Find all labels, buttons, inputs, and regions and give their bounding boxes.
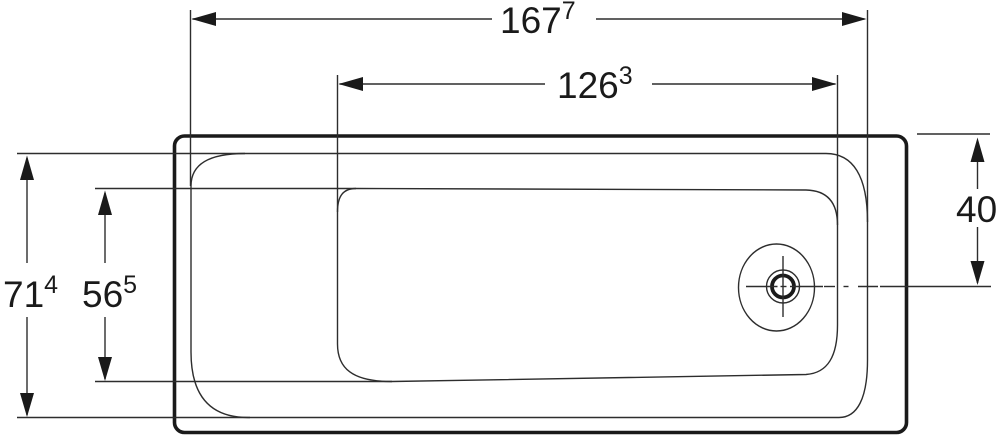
- dim-label-length-inner: 1263: [557, 62, 633, 106]
- dim-drain-offset-arrow-down: [971, 261, 985, 285]
- dim-width-inner-arrow-down: [98, 357, 112, 381]
- bathtub-dimension-drawing: 1677 1263 714 565 40: [0, 0, 1000, 439]
- dim-label-length-outer: 1677: [500, 0, 576, 41]
- dim-length-inner-arrow-left: [339, 77, 364, 91]
- dim-label-width-inner: 565: [82, 271, 137, 315]
- tub-outline-group: [175, 136, 907, 433]
- dim-label-drain-offset: 40: [956, 189, 997, 230]
- dim-length-inner-arrow-right: [812, 77, 837, 91]
- dim-width-outer-arrow-down: [20, 393, 34, 417]
- dim-label-width-outer: 714: [3, 271, 58, 315]
- dim-width-inner-arrow-up: [98, 191, 112, 216]
- dim-length-outer-arrow-left: [192, 12, 217, 26]
- tub-outer-edge: [175, 136, 907, 433]
- dim-width-outer-arrow-up: [20, 156, 34, 181]
- dim-drain-offset-arrow-up: [971, 138, 985, 163]
- dim-length-outer-arrow-right: [842, 12, 867, 26]
- drawing-canvas: 1677 1263 714 565 40: [0, 0, 1000, 439]
